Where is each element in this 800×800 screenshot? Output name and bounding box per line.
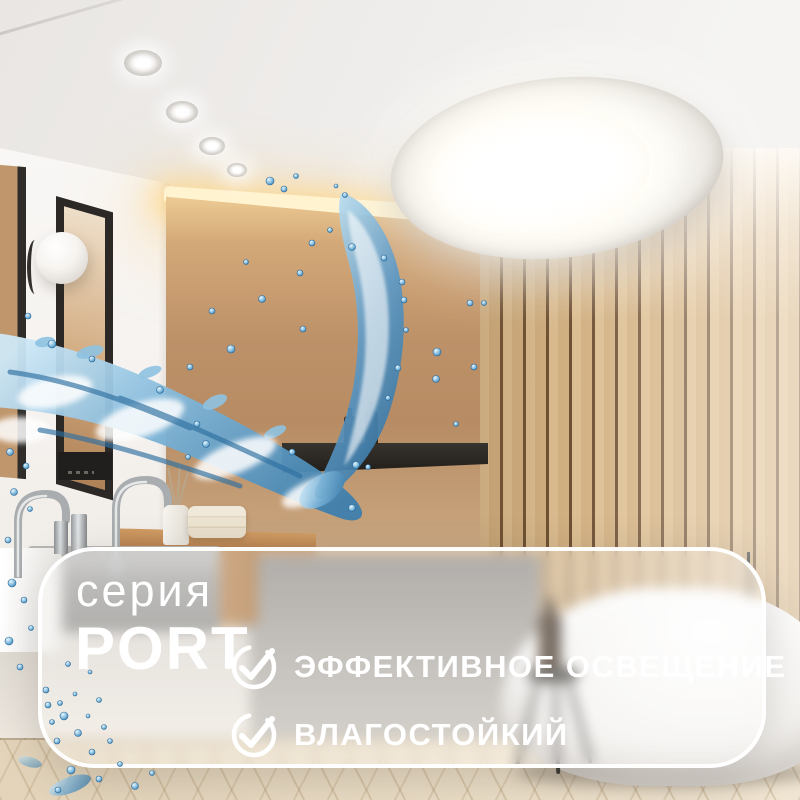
check-circle-icon: [228, 641, 280, 693]
recessed-downlight: [124, 50, 162, 76]
diffuser-sticks: [158, 462, 198, 510]
feature-item: ЭФФЕКТИВНОЕ ОСВЕЩЕНИЕ: [228, 641, 787, 693]
soap-dispenser-bottle: [365, 411, 378, 444]
series-name: PORT: [75, 617, 250, 680]
check-circle-icon: [228, 709, 280, 761]
wall-mirror: [0, 165, 26, 479]
feature-label: ЭФФЕКТИВНОЕ ОСВЕЩЕНИЕ: [294, 649, 787, 685]
countertop-canister: [54, 521, 68, 554]
downlight-glow: [422, 99, 656, 246]
feature-label: ВЛАГОСТОЙКИЙ: [294, 717, 569, 753]
reed-diffuser-bottle: [163, 505, 189, 545]
promo-card: серия PORT ЭФФЕКТИВНОЕ ОСВЕЩЕНИЕ ВЛАГОСТ…: [38, 547, 766, 768]
feature-item: ВЛАГОСТОЙКИЙ: [228, 709, 569, 761]
ceiling-soffit-edge: [0, 0, 254, 37]
recessed-downlight: [166, 101, 198, 123]
series-label: серия: [76, 567, 213, 614]
towel-stack: [188, 506, 246, 538]
recessed-downlight: [199, 137, 225, 155]
sphere-wall-lamp: [36, 232, 88, 284]
product-promo-image: серия PORT ЭФФЕКТИВНОЕ ОСВЕЩЕНИЕ ВЛАГОСТ…: [0, 0, 800, 800]
soap-dispenser-bottle: [344, 416, 356, 444]
recessed-downlight: [227, 163, 247, 177]
